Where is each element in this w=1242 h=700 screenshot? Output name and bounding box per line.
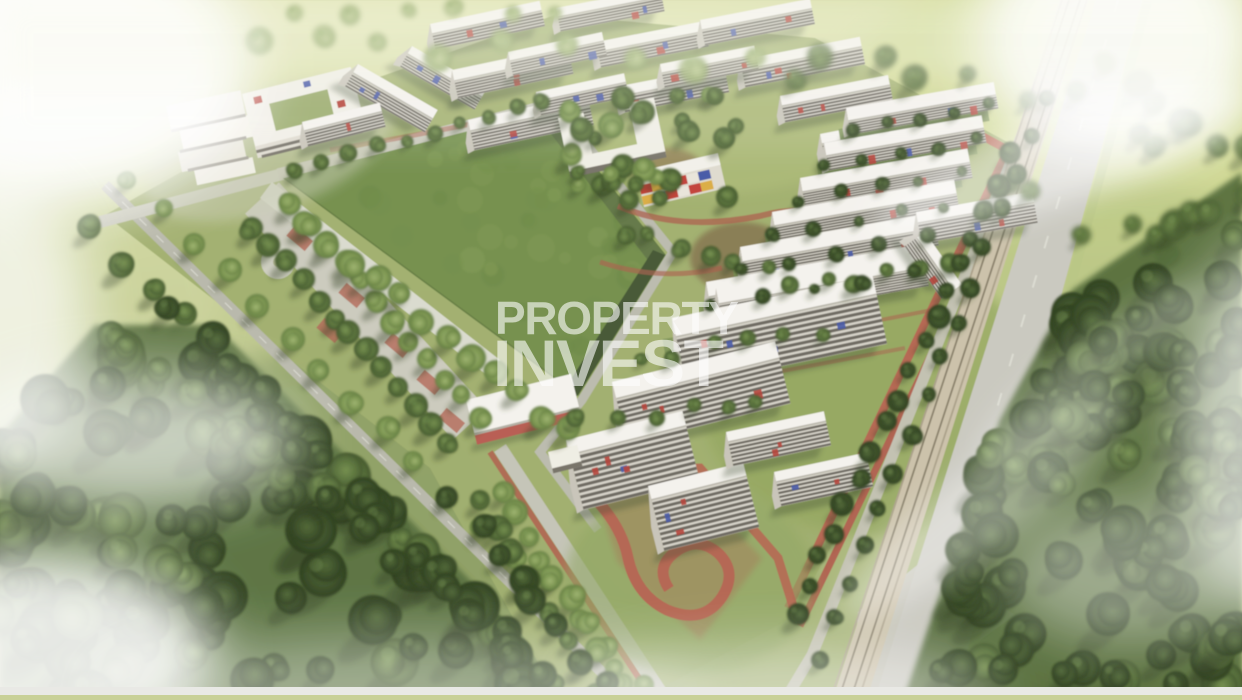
svg-text:INVEST: INVEST (493, 326, 724, 400)
